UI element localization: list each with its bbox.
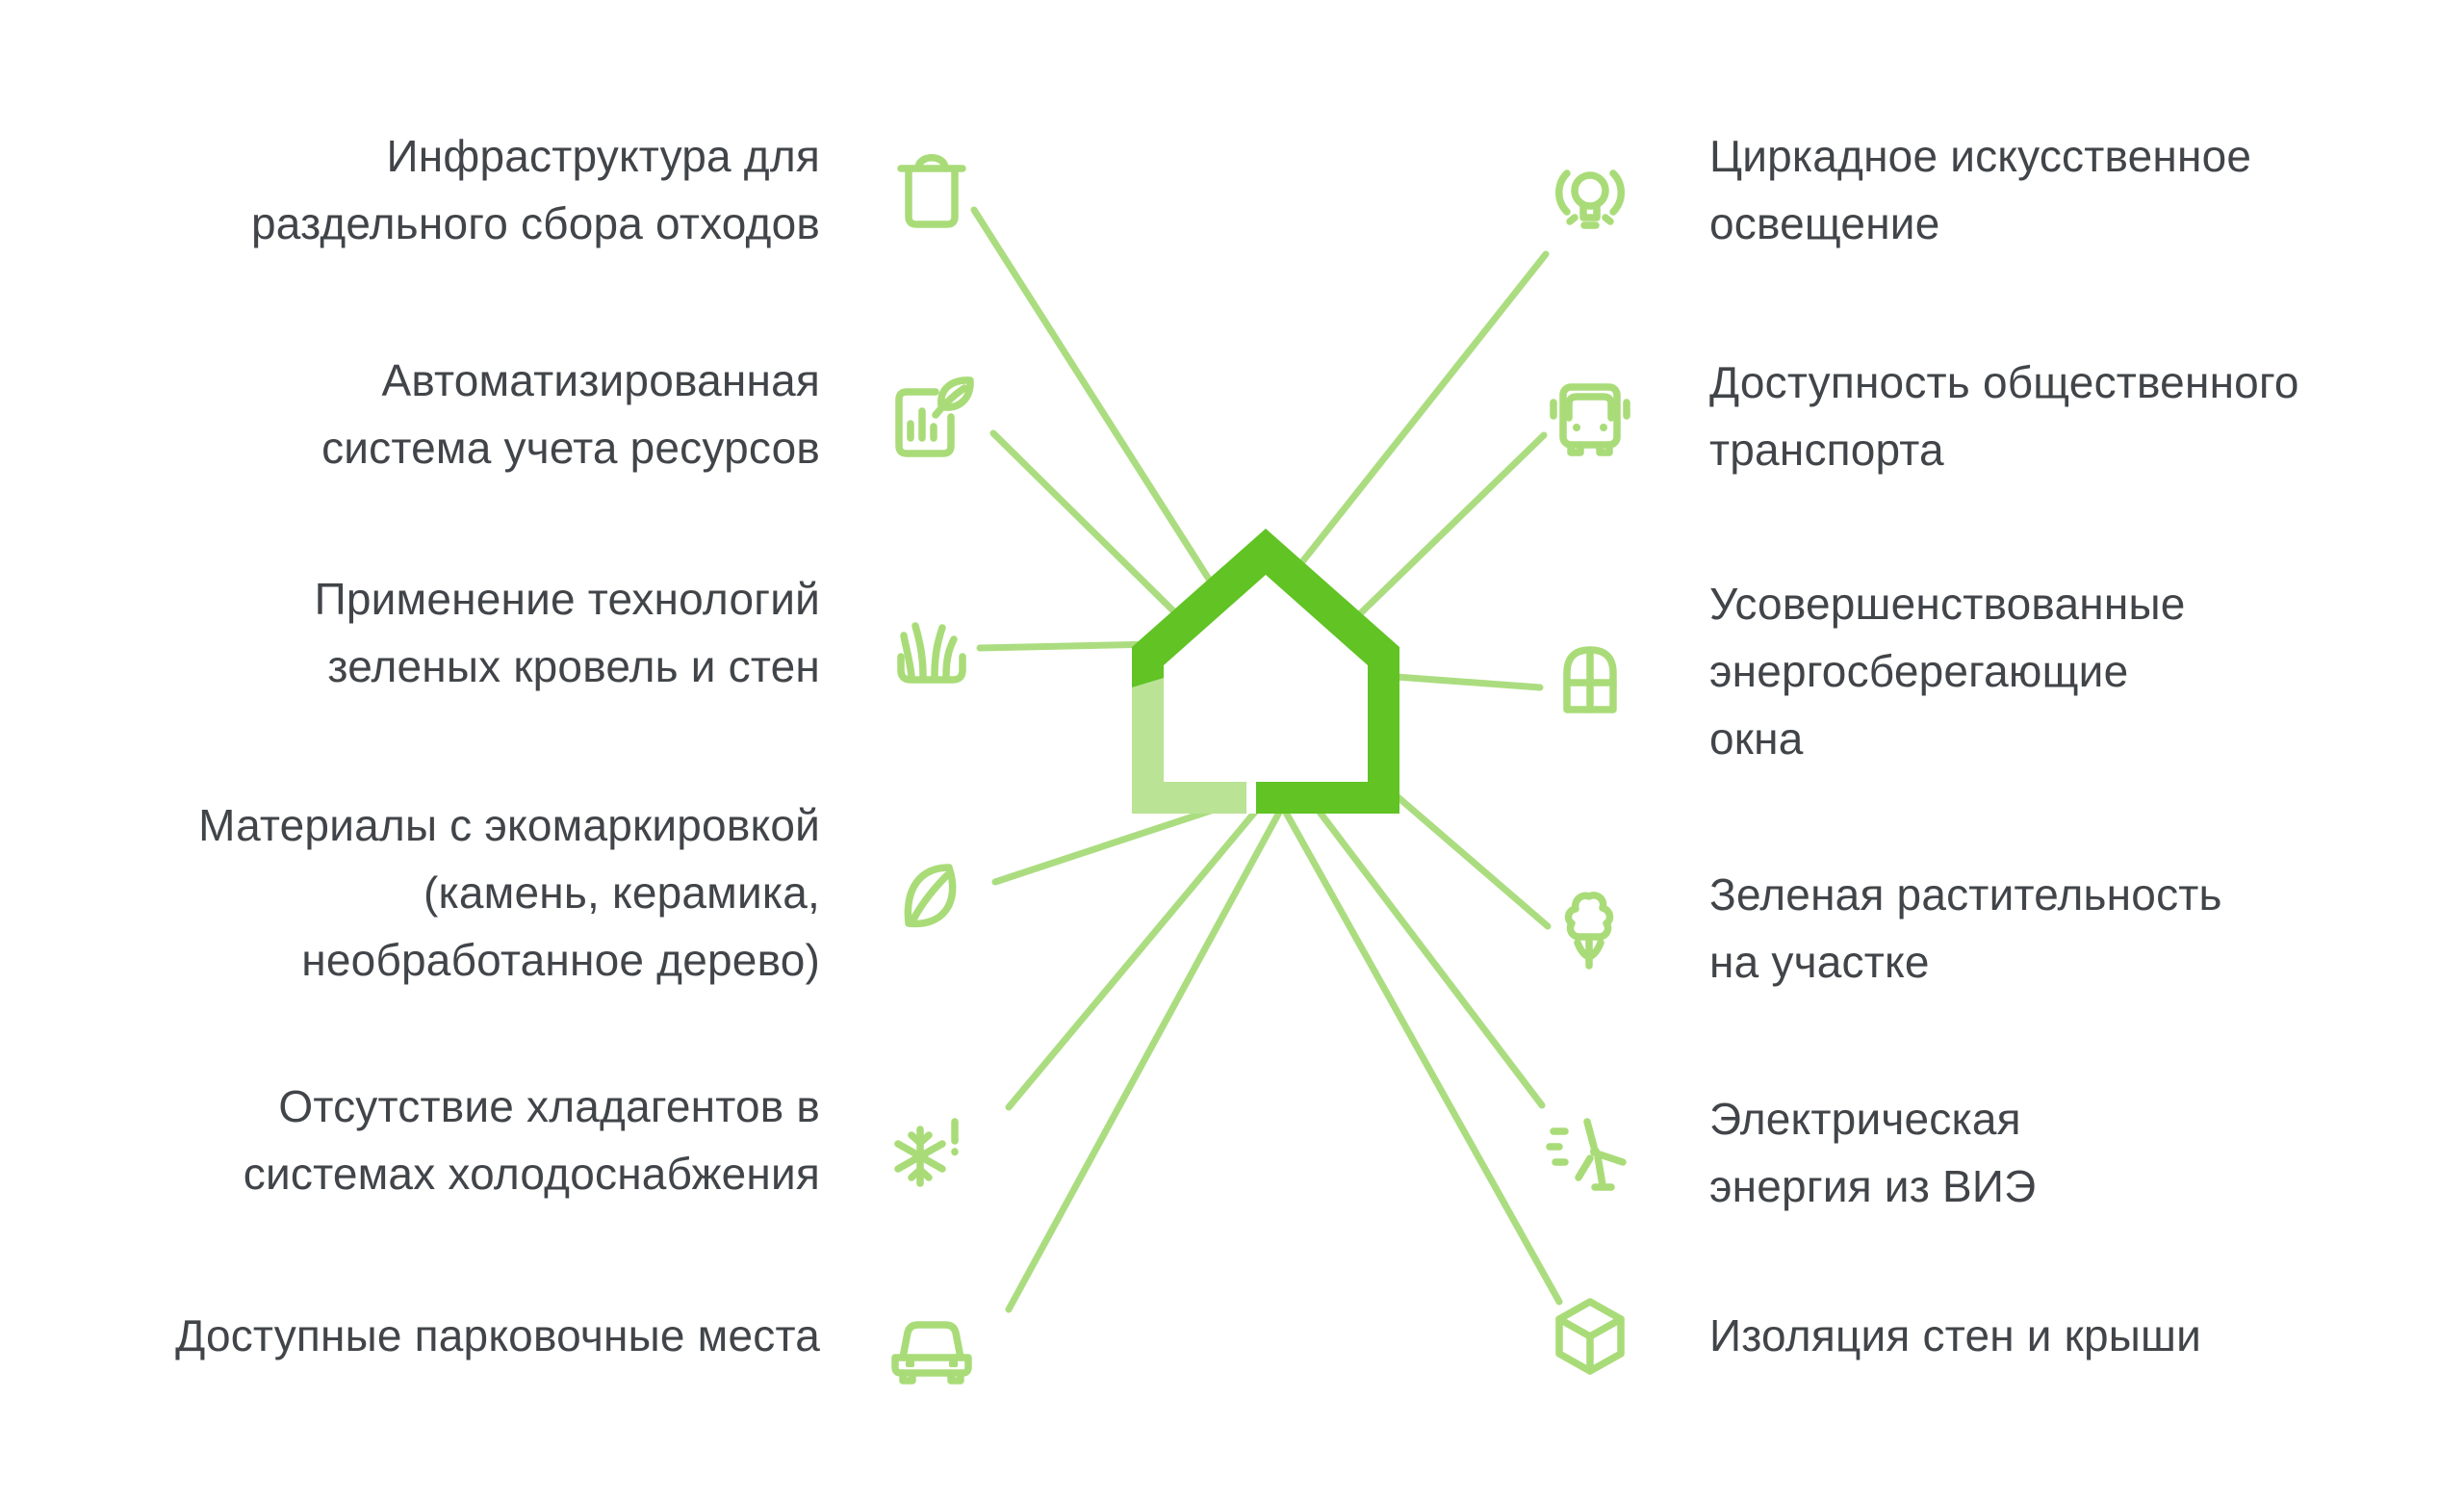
bus-icon [1542, 368, 1638, 464]
feature-label-line: Применение технологий [315, 565, 820, 633]
feature-label-line: Усовершенствованные [1709, 570, 2186, 637]
feature-renewable-electricity: Электрическая энергия из ВИЭ [1709, 1085, 2036, 1220]
feature-label-line: Доступные парковочные места [175, 1302, 820, 1369]
feature-no-refrigerants: Отсутствие хладагентов в системах холодо… [244, 1073, 820, 1207]
feature-label-line: необработанное дерево) [198, 926, 820, 994]
house-floor-right [1256, 782, 1399, 814]
feature-waste-sorting-infrastructure: Инфраструктура для раздельного сбора отх… [251, 122, 820, 257]
feature-energy-saving-windows: Усовершенствованные энергосберегающие ок… [1709, 570, 2186, 772]
feature-automated-resource-metering: Автоматизированная система учета ресурсо… [321, 347, 820, 481]
car-icon [884, 1298, 980, 1394]
feature-site-greenery: Зеленая растительность на участке [1709, 861, 2222, 996]
feature-label-line: Отсутствие хладагентов в [244, 1073, 820, 1140]
chart-leaf-icon [884, 371, 980, 467]
feature-label-line: зеленых кровель и стен [315, 633, 820, 700]
window-icon [1542, 631, 1638, 727]
feature-label-line: энергосберегающие [1709, 637, 2186, 705]
feature-label-line: Автоматизированная [321, 347, 820, 414]
feature-label-line: Изоляция стен и крыши [1709, 1302, 2201, 1369]
wind-turbine-icon [1542, 1102, 1638, 1199]
feature-label-line: Зеленая растительность [1709, 861, 2222, 928]
feature-label-line: освещение [1709, 190, 2251, 257]
feature-label-line: раздельного сбора отходов [251, 190, 820, 257]
feature-eco-labeled-materials: Материалы с экомаркировкой (камень, кера… [198, 791, 820, 994]
cube-icon [1542, 1290, 1638, 1386]
feature-accessible-parking: Доступные парковочные места [175, 1302, 820, 1369]
feature-label-line: системах холодоснабжения [244, 1140, 820, 1207]
feature-label-line: Циркадное искусственное [1709, 122, 2251, 190]
feature-label-line: на участке [1709, 928, 2222, 996]
infographic-canvas: Инфраструктура для раздельного сбора отх… [0, 0, 2464, 1502]
leaf-icon [884, 850, 980, 946]
feature-label-line: Инфраструктура для [251, 122, 820, 190]
grass-icon [884, 599, 980, 695]
tree-icon [1542, 881, 1638, 977]
feature-public-transport-access: Доступность общественного транспорта [1709, 349, 2299, 483]
feature-label-line: Электрическая [1709, 1085, 2036, 1152]
feature-label-line: (камень, керамика, [198, 859, 820, 926]
feature-label-line: транспорта [1709, 416, 2299, 483]
feature-green-roofs-walls: Применение технологий зеленых кровель и … [315, 565, 820, 700]
feature-label-line: система учета ресурсов [321, 414, 820, 481]
feature-label-line: энергия из ВИЭ [1709, 1152, 2036, 1220]
snowflake-alert-icon [884, 1104, 980, 1201]
feature-label-line: Доступность общественного [1709, 349, 2299, 416]
feature-label-line: окна [1709, 705, 2186, 772]
feature-label-line: Материалы с экомаркировкой [198, 791, 820, 859]
feature-circadian-lighting: Циркадное искусственное освещение [1709, 122, 2251, 257]
feature-wall-roof-insulation: Изоляция стен и крыши [1709, 1302, 2201, 1369]
trash-bin-icon [884, 140, 980, 236]
lightbulb-icon [1542, 154, 1638, 250]
